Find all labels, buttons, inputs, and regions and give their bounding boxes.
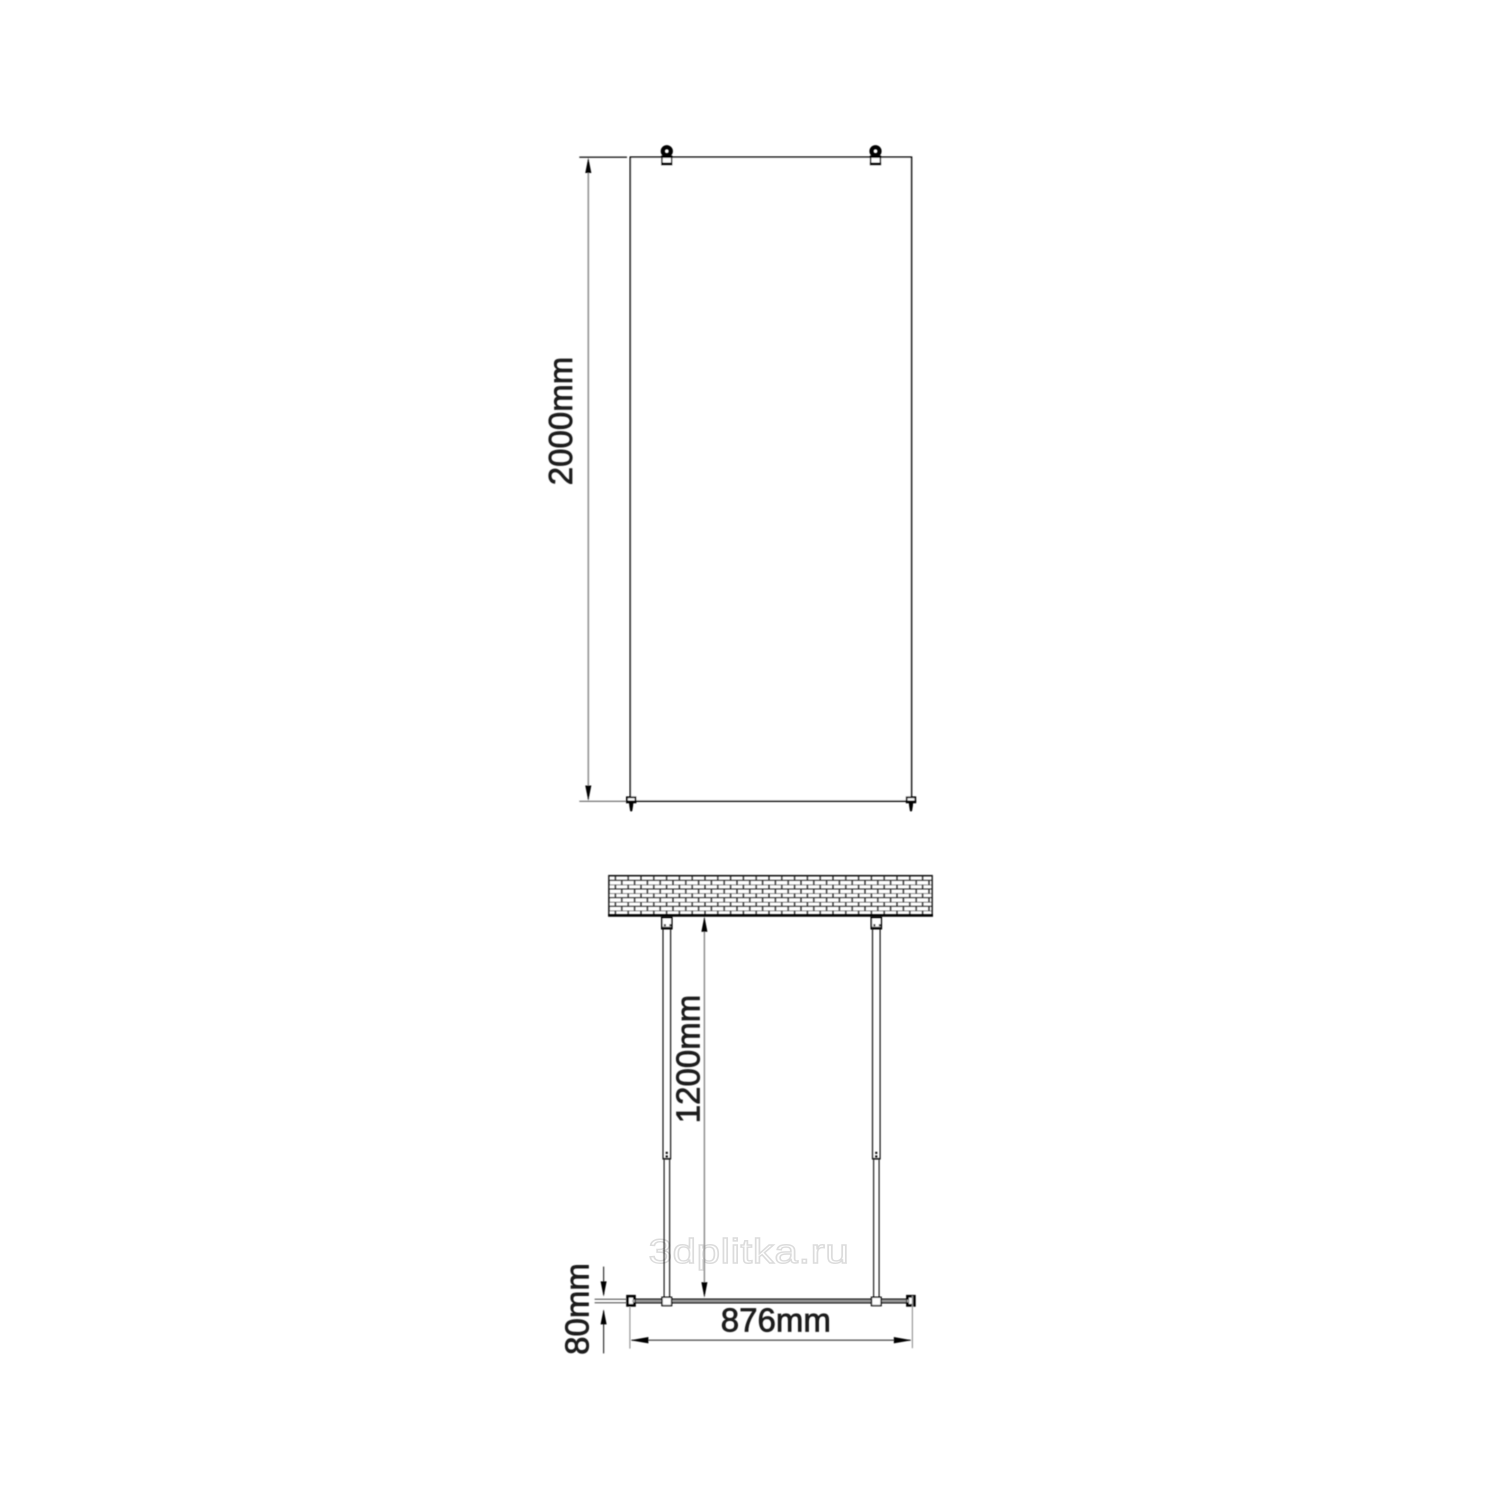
svg-text:1200mm: 1200mm: [670, 995, 707, 1123]
svg-text:80mm: 80mm: [559, 1263, 596, 1355]
svg-text:2000mm: 2000mm: [542, 357, 579, 485]
svg-text:876mm: 876mm: [721, 1302, 831, 1339]
svg-text:3dplitka.ru: 3dplitka.ru: [649, 1232, 850, 1271]
